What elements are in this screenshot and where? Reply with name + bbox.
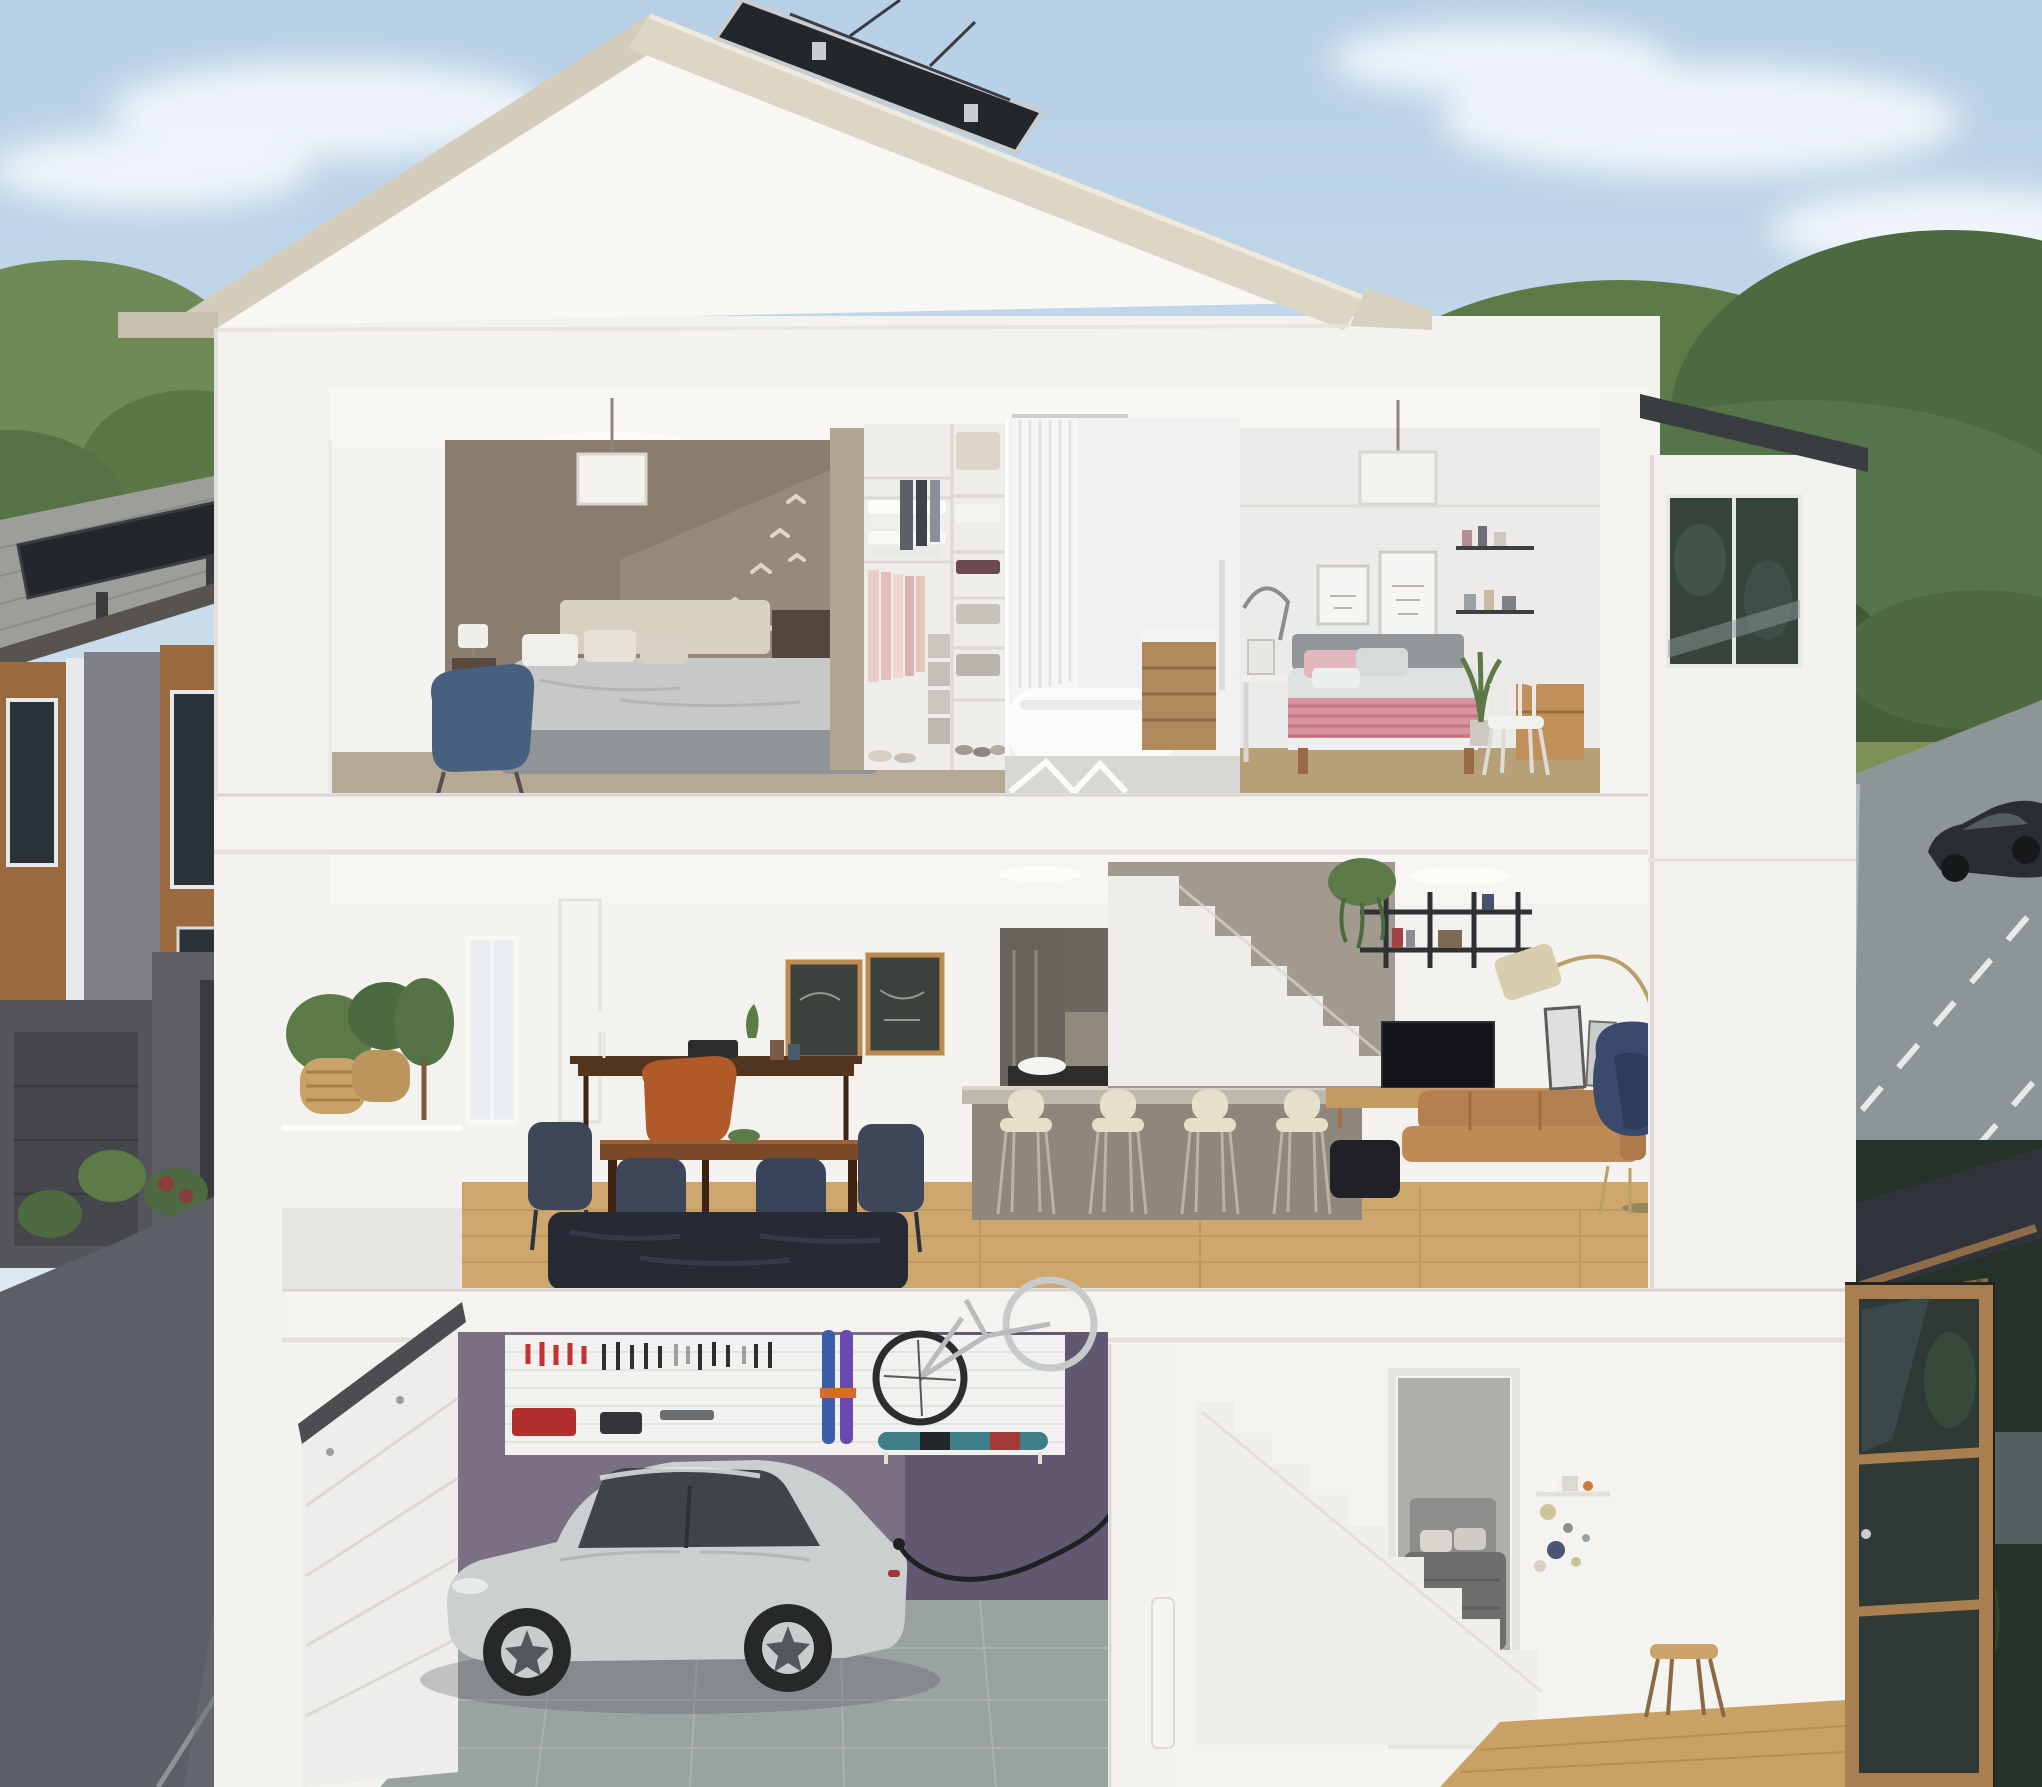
sheet-fold bbox=[1288, 738, 1478, 750]
townhouse-cutaway-illustration bbox=[0, 0, 2042, 1787]
door-handle bbox=[1861, 1529, 1871, 1539]
desk-photo-frame bbox=[1248, 640, 1274, 674]
white-bowl bbox=[1018, 1057, 1066, 1075]
board-binding bbox=[990, 1432, 1020, 1450]
ski-bindings bbox=[820, 1388, 856, 1398]
shower-curtain bbox=[1012, 418, 1078, 690]
hanging-dresses-pink bbox=[868, 570, 925, 682]
solar-mount bbox=[812, 42, 826, 60]
leaning-frame bbox=[1545, 1007, 1584, 1089]
ski bbox=[822, 1330, 835, 1444]
ceiling-spotlight bbox=[998, 866, 1082, 882]
charge-plug bbox=[893, 1538, 905, 1550]
duvet bbox=[505, 658, 875, 730]
tool-tray bbox=[660, 1410, 714, 1420]
door-roller bbox=[326, 1448, 334, 1456]
entry-door bbox=[1845, 1282, 1995, 1787]
street bbox=[1845, 700, 2042, 1195]
blue-chair bbox=[431, 664, 534, 772]
rust-chair bbox=[642, 1056, 737, 1146]
car-wheel bbox=[1941, 854, 1969, 882]
upper-dark-window bbox=[1668, 496, 1800, 666]
pendant-lamp bbox=[578, 454, 646, 504]
pillow bbox=[640, 634, 688, 664]
balcony bbox=[282, 978, 462, 1288]
wicker-seat-2 bbox=[352, 1050, 410, 1102]
garage bbox=[298, 1280, 1140, 1787]
ledge-ornament bbox=[1583, 1481, 1593, 1491]
grey-panel bbox=[84, 652, 160, 1002]
wall-art-frame bbox=[1380, 552, 1436, 636]
dot-decal bbox=[1534, 1560, 1546, 1572]
navy-shag-rug bbox=[548, 1212, 908, 1290]
television bbox=[1382, 1022, 1494, 1088]
bed-leg bbox=[1298, 748, 1308, 774]
shrub bbox=[78, 1150, 146, 1202]
solar-mount bbox=[964, 104, 978, 122]
ledge-frame bbox=[1562, 1476, 1578, 1491]
second-bedroom bbox=[1238, 400, 1607, 794]
table-centerpiece bbox=[728, 1129, 760, 1143]
board-binding bbox=[920, 1432, 950, 1450]
book bbox=[788, 1044, 800, 1060]
snowboard bbox=[878, 1432, 1048, 1450]
sofa-back bbox=[1418, 1090, 1624, 1132]
navy-chair bbox=[528, 1122, 592, 1210]
potted-tree bbox=[394, 978, 454, 1066]
walk-in-closet bbox=[830, 424, 1006, 770]
dot-decal bbox=[1571, 1557, 1581, 1567]
box bbox=[1438, 930, 1462, 948]
navy-chair bbox=[858, 1124, 924, 1212]
ceiling-spotlight bbox=[1410, 867, 1510, 885]
plant-foliage bbox=[1328, 858, 1396, 906]
stair-hall bbox=[1152, 1282, 1995, 1787]
pillow bbox=[1420, 1530, 1452, 1552]
pillow-small bbox=[1312, 668, 1360, 688]
power-drill bbox=[600, 1412, 642, 1434]
book bbox=[1392, 928, 1403, 948]
bathroom bbox=[1005, 416, 1240, 796]
ground-floor bbox=[298, 1280, 1995, 1787]
cloud bbox=[1330, 24, 1670, 96]
ski bbox=[840, 1330, 853, 1444]
taillight bbox=[888, 1570, 900, 1577]
car-wheel bbox=[2012, 836, 2040, 864]
book bbox=[770, 1040, 784, 1060]
pillow bbox=[1454, 1528, 1486, 1550]
laptop bbox=[688, 1040, 738, 1058]
slab-band bbox=[214, 793, 1655, 855]
dot-decal bbox=[1540, 1504, 1556, 1520]
dot-decal bbox=[1547, 1541, 1565, 1559]
vanity-cabinet bbox=[1142, 642, 1216, 750]
book bbox=[1406, 930, 1415, 948]
chalkboard-art bbox=[788, 962, 860, 1058]
pillow-grey bbox=[1356, 648, 1408, 676]
pillow bbox=[522, 634, 578, 666]
black-rug bbox=[1330, 1140, 1400, 1198]
newel-post bbox=[1152, 1598, 1174, 1748]
tree-reflection bbox=[1674, 524, 1726, 596]
upper-floor bbox=[330, 388, 1655, 796]
neighbour-window bbox=[8, 700, 56, 865]
book bbox=[1482, 894, 1494, 910]
closet-side-panel bbox=[830, 428, 864, 770]
flower-shrub bbox=[158, 1176, 174, 1192]
cut-wall-upper-right bbox=[1600, 388, 1655, 794]
vanity-counter bbox=[1142, 630, 1216, 642]
stool-seat bbox=[1650, 1644, 1718, 1659]
balcony-underside bbox=[282, 1208, 462, 1288]
chair-seat bbox=[1488, 716, 1544, 729]
pendant-lamp bbox=[1360, 452, 1436, 504]
bed-leg bbox=[1464, 748, 1474, 774]
road-surface bbox=[1845, 700, 2042, 1195]
shrub bbox=[18, 1190, 82, 1238]
headlight bbox=[452, 1578, 488, 1594]
balcony-railing-wall bbox=[282, 1124, 462, 1208]
chalkboard-art bbox=[868, 955, 942, 1053]
dot-decal bbox=[1563, 1523, 1573, 1533]
red-toolbox bbox=[512, 1408, 576, 1436]
flower-shrub bbox=[179, 1189, 193, 1203]
hanging-clothes bbox=[900, 480, 940, 550]
sofa-seat bbox=[1402, 1126, 1640, 1162]
scene-canvas bbox=[0, 0, 2042, 1787]
eave-overhang-left bbox=[118, 312, 218, 338]
tree-reflection bbox=[1924, 1332, 1976, 1428]
floor-slab-upper bbox=[214, 793, 1655, 855]
pillow bbox=[584, 630, 636, 662]
ledge-cup bbox=[1544, 1480, 1555, 1492]
dot-decal bbox=[1582, 1534, 1590, 1542]
table-lamp bbox=[458, 624, 488, 648]
door-roller bbox=[396, 1396, 404, 1404]
cloud bbox=[0, 132, 310, 208]
